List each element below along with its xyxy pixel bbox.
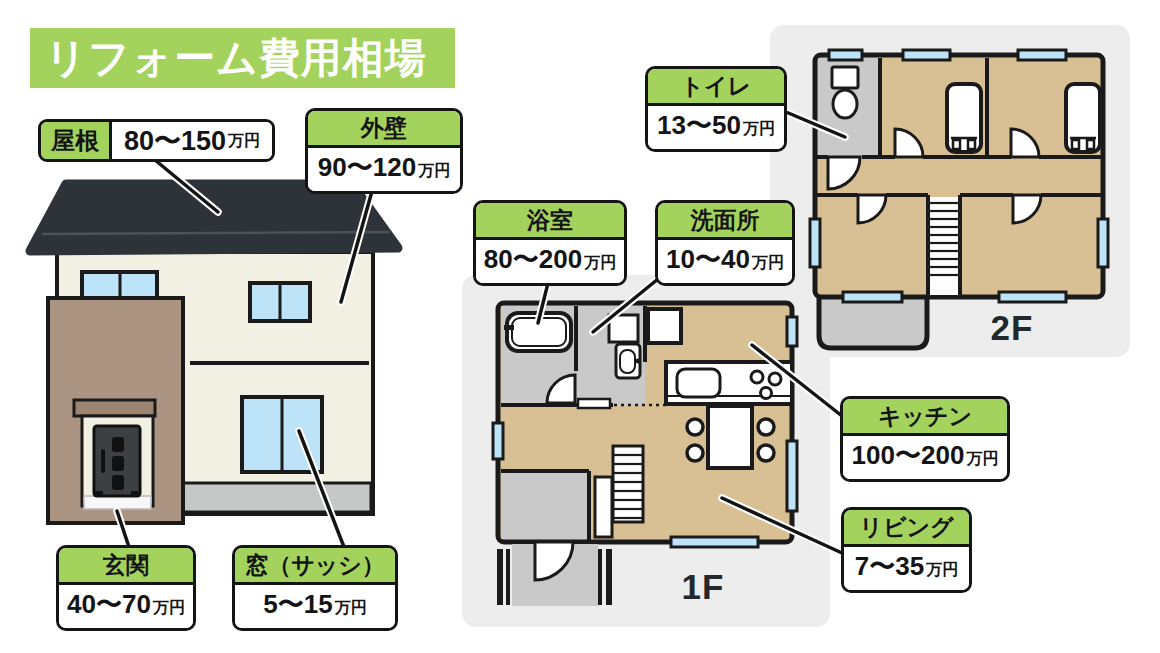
label-name: キッチン [843,399,1007,436]
cost-unit: 万円 [335,599,367,616]
label-value: 80〜150万円 [112,122,272,159]
floor-label-1f: 1F [671,567,735,607]
door-glass-slot [112,437,124,452]
label-name: 窓（サッシ） [235,548,395,585]
door-foot [94,491,103,497]
cost-label-window: 窓（サッシ） 5〜15万円 [232,545,398,631]
toilet-tank [832,67,858,88]
label-value: 13〜50万円 [648,106,784,149]
label-name: 屋根 [41,122,112,159]
label-name: 洗面所 [658,203,792,240]
floor-label-2f: 2F [980,308,1044,348]
stairs-1f [613,446,643,522]
renovation-cost-infographic: リフォーム費用相場 屋根 80〜150万円 外壁 90〜120万円 トイレ 13… [0,0,1160,653]
label-value: 5〜15万円 [235,585,395,628]
door-handle [101,449,105,473]
bed-1 [947,84,981,152]
label-value: 100〜200万円 [843,436,1007,479]
cost-label-kitchen: キッチン 100〜200万円 [840,396,1010,482]
label-value: 80〜200万円 [476,240,624,283]
dining-table [708,406,752,468]
door-glass-slot [112,456,124,471]
washbasin-tap [636,359,641,364]
cost-range: 40〜70 [67,589,151,619]
cost-range: 10〜40 [666,244,750,274]
cost-label-toilet: トイレ 13〜50万円 [645,66,787,152]
door-foot [131,491,140,497]
cost-label-entrance: 玄関 40〜70万円 [56,545,196,631]
threshold [578,399,610,408]
cost-range: 5〜15 [263,589,332,619]
label-value: 7〜35万円 [844,547,969,590]
label-value: 10〜40万円 [658,240,792,283]
entrance-hall-area [501,471,589,539]
house-foundation [183,483,371,512]
label-name: トイレ [648,69,784,106]
cost-range: 80〜200 [484,244,582,274]
cost-range: 90〜120 [318,152,416,182]
cost-unit: 万円 [153,599,185,616]
bed-2 [1066,84,1100,152]
cost-label-washroom: 洗面所 10〜40万円 [655,200,795,286]
cost-unit: 万円 [584,254,616,271]
label-name: 浴室 [476,203,624,240]
cost-label-bathroom: 浴室 80〜200万円 [473,200,627,286]
closet [595,477,612,537]
entrance-step [84,496,151,509]
toilet-bowl [833,90,857,118]
label-name: 玄関 [59,548,193,585]
cost-range: 80〜150 [124,124,226,158]
label-name: 外壁 [308,111,460,148]
cost-label-living: リビング 7〜35万円 [841,507,972,593]
cost-label-roof: 屋根 80〜150万円 [38,119,275,162]
cost-unit: 万円 [752,254,784,271]
cost-unit: 万円 [966,450,998,467]
label-value: 90〜120万円 [308,148,460,191]
cost-unit: 万円 [743,120,775,137]
kitchen-sink [677,369,720,397]
page-title: リフォーム費用相場 [30,28,455,88]
cost-range: 13〜50 [657,110,741,140]
bathtub-tap [504,325,514,330]
label-value: 40〜70万円 [59,585,193,628]
refrigerator [648,309,681,343]
label-name: リビング [844,510,969,547]
cost-range: 7〜35 [855,551,924,581]
house-illustration [30,184,398,523]
cost-unit: 万円 [418,162,450,179]
entrance-canopy [74,400,155,416]
cost-range: 100〜200 [852,440,965,470]
roof [30,184,398,251]
cost-unit: 万円 [926,561,958,578]
cost-unit: 万円 [228,124,260,158]
cost-label-exterior-wall: 外壁 90〜120万円 [305,108,463,194]
door-glass-slot [112,475,124,490]
